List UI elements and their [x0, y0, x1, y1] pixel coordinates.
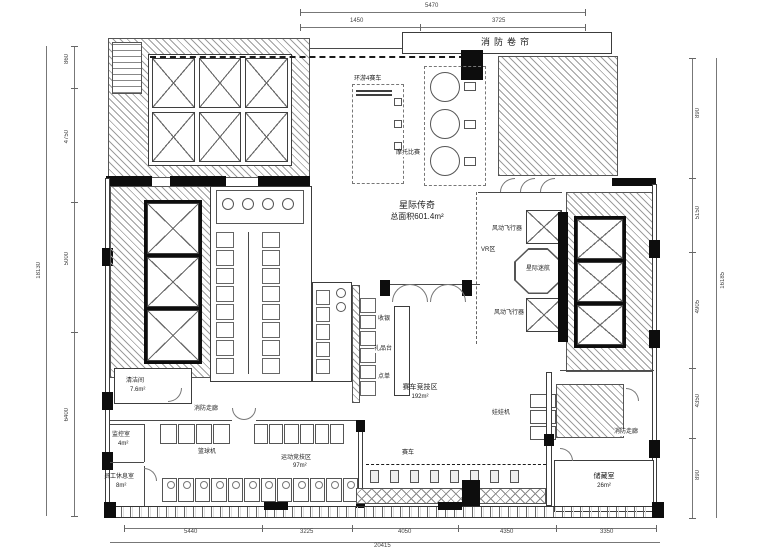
tick	[71, 46, 78, 47]
tick	[71, 332, 78, 333]
dim-right-2: 5150	[695, 206, 701, 219]
wall-pilaster	[102, 392, 113, 410]
tick	[689, 178, 696, 179]
floor-plan: 5470 1450 3725 860 4750 5000 6400 18130 …	[0, 0, 780, 551]
dim-line-top-total	[300, 12, 585, 13]
basketball-machine-icon	[213, 424, 230, 444]
toilet-stall-icon	[216, 286, 234, 302]
claw-machine-icon	[530, 410, 556, 424]
toilet-stall-icon	[262, 358, 280, 374]
tick	[262, 525, 263, 532]
race-zone-dashed-line	[366, 464, 546, 465]
plan-area: 总面积601.4m²	[362, 212, 472, 221]
wall-pilaster	[649, 240, 660, 258]
curtain-wall-window	[112, 506, 656, 518]
dim-right-5: 890	[695, 470, 701, 480]
elevator-shaft-icon	[147, 310, 199, 361]
toilet-stall-icon	[216, 268, 234, 284]
arcade-machine-icon	[293, 478, 308, 502]
corridor-wall	[256, 420, 360, 421]
tick	[300, 9, 301, 16]
moto-sim-icon	[430, 72, 460, 102]
basketball-machine-icon	[160, 424, 177, 444]
dim-bottom-1: 5440	[184, 529, 197, 535]
wall-pilaster	[649, 330, 660, 348]
fixture-icon	[316, 359, 330, 374]
toilet-stall-icon	[262, 340, 280, 356]
dim-top-2: 3725	[492, 18, 505, 24]
basketball-row-left	[160, 424, 230, 444]
fixture-icon	[316, 342, 330, 357]
door-swing-icon	[500, 178, 515, 192]
claw-machine-icon	[530, 394, 556, 408]
dim-bottom-2: 3225	[300, 529, 313, 535]
elevator-shaft-icon	[152, 112, 195, 162]
sports-zone-area: 97m²	[293, 463, 307, 470]
door-swing-icon	[540, 178, 555, 192]
door-swing-icon	[232, 408, 244, 420]
dim-line-left-total	[46, 46, 47, 516]
basketball-row-right	[254, 424, 344, 444]
basketball-machine-icon	[196, 424, 213, 444]
arcade-machine-icon	[195, 478, 210, 502]
screen-icon	[464, 157, 476, 166]
counter	[394, 306, 410, 396]
elevator-shaft-icon	[147, 203, 199, 254]
dim-bottom-5: 3350	[600, 529, 613, 535]
moto-race-label: 摩托比赛	[396, 150, 420, 157]
dim-bottom-4: 4350	[500, 529, 513, 535]
plan-title: 星际传奇	[362, 200, 472, 210]
tick	[556, 525, 557, 532]
cashier-label: 收银	[378, 316, 390, 323]
monitor-room-wall	[110, 424, 144, 425]
fixture-column	[316, 290, 330, 374]
wall-pilaster	[102, 452, 113, 470]
toilet-stall-icon	[262, 286, 280, 302]
toilet-stalls-right	[262, 232, 280, 374]
sink-icon	[262, 198, 274, 210]
cleaning-room	[114, 368, 192, 404]
door-swing-icon	[430, 284, 448, 302]
fixture-icon	[316, 290, 330, 305]
stall-aisle-line	[248, 232, 249, 374]
wall-segment	[258, 176, 310, 186]
dim-left-4: 6400	[64, 408, 70, 421]
tick	[585, 9, 586, 16]
wall-column	[462, 480, 480, 506]
door-swing-icon	[144, 468, 157, 481]
race-car-label: 赛车	[402, 450, 414, 457]
dim-left-1: 860	[64, 54, 70, 64]
elevator-bank-right	[574, 216, 626, 348]
arcade-machine-icon	[310, 478, 325, 502]
basketball-machine-icon	[315, 424, 329, 444]
dim-bottom-total: 20415	[374, 543, 391, 549]
shelf-cell-icon	[360, 298, 376, 313]
moto-sim-icon	[430, 109, 460, 139]
toilet-stall-icon	[216, 322, 234, 338]
sink-icon	[242, 198, 254, 210]
tick	[585, 24, 586, 31]
wall-mullion	[264, 502, 288, 510]
seat-icon	[394, 120, 402, 128]
basketball-machine-icon	[269, 424, 283, 444]
tick	[300, 24, 301, 31]
monitor-room-wall	[144, 424, 145, 462]
basketball-machine-icon	[330, 424, 344, 444]
arcade-machine-icon	[261, 478, 276, 502]
cleaning-room-label: 清洁间	[126, 378, 144, 385]
vr-zone-label: VR区	[481, 247, 495, 254]
wall-hatch-strip	[352, 285, 360, 403]
tick	[71, 202, 78, 203]
toilet-stall-icon	[262, 304, 280, 320]
shelf-cell-icon	[360, 381, 376, 396]
basin-icon	[336, 302, 346, 312]
arcade-machine-icon	[326, 478, 341, 502]
shelf-cell-icon	[360, 365, 376, 380]
claw-machine-label: 娃娃机	[492, 410, 510, 417]
staff-room-label: 员工休息室	[104, 474, 134, 481]
vr-top-wall	[478, 192, 562, 193]
gift-counter-label: 礼品台	[374, 346, 392, 353]
monitor-room-label: 监控室	[112, 432, 130, 439]
race-seat-icon	[390, 470, 399, 483]
moto-sim-icon	[430, 146, 460, 176]
wall-corner	[652, 502, 664, 518]
arcade-machine-icon	[211, 478, 226, 502]
tick	[656, 525, 657, 532]
door-swing-icon	[520, 178, 535, 192]
dim-right-4: 4350	[695, 394, 701, 407]
elevator-shaft-icon	[577, 262, 623, 302]
toilet-stall-icon	[216, 358, 234, 374]
arcade-machine-icon	[178, 478, 193, 502]
toilet-stall-icon	[216, 340, 234, 356]
arcade-machine-icon	[244, 478, 259, 502]
race-seat-icon	[430, 470, 439, 483]
seat-icon	[394, 142, 402, 150]
tick	[458, 525, 459, 532]
sink-icon	[282, 198, 294, 210]
wind-flyer-bottom-label: 风动飞行器	[494, 310, 524, 317]
door-swing-icon	[410, 284, 428, 302]
race-seat-icon	[450, 470, 459, 483]
racing4-machines	[356, 90, 392, 164]
tick	[689, 368, 696, 369]
toilet-stall-icon	[262, 232, 280, 248]
door-swing-icon	[244, 408, 256, 420]
race-seat-icon	[370, 470, 379, 483]
wall-pilaster	[649, 440, 660, 458]
basketball-machine-icon	[254, 424, 268, 444]
screen-icon	[464, 82, 476, 91]
wind-flyer-top-label: 风动飞行器	[492, 226, 522, 233]
elevator-shaft-icon	[147, 257, 199, 308]
toilet-stall-icon	[262, 268, 280, 284]
basin-icon	[336, 288, 346, 298]
dim-left-total: 18130	[36, 262, 42, 279]
tick	[71, 516, 78, 517]
shelf-cell-icon	[360, 315, 376, 330]
wall-corner	[104, 502, 116, 518]
wind-flyer-icon	[526, 210, 562, 244]
dim-line-top-seg	[300, 27, 585, 28]
tick	[689, 518, 696, 519]
vr-zone-dashed-line	[476, 192, 477, 344]
wall-segment	[558, 212, 568, 342]
order-point-label: 点单	[378, 374, 390, 381]
elevator-shaft-icon	[245, 58, 288, 108]
wall-column	[380, 280, 390, 296]
toilet-stall-icon	[262, 322, 280, 338]
basketball-label: 篮球机	[198, 449, 216, 456]
toilet-stalls-left	[216, 232, 234, 374]
wall-pilaster	[544, 434, 554, 446]
corridor-wall	[560, 370, 654, 371]
fire-shutter-label: 消防卷帘	[402, 37, 612, 47]
fixture-icon	[316, 307, 330, 322]
wall-segment	[170, 176, 226, 186]
fire-shutter-dashed-line	[150, 56, 465, 58]
dim-top-1: 1450	[350, 18, 363, 24]
elevator-shaft-icon	[245, 112, 288, 162]
fire-corridor-left-label: 消防走廊	[194, 406, 218, 413]
dim-line-bottom-seg	[124, 528, 656, 529]
staff-room-area: 8m²	[116, 483, 126, 490]
dim-bottom-3: 4050	[398, 529, 411, 535]
fire-corridor-right-label: 消防走廊	[614, 429, 638, 436]
arcade-machine-icon	[277, 478, 292, 502]
door-swing-icon	[392, 284, 410, 302]
sports-machine-row	[162, 478, 358, 502]
elevator-bank-topleft	[152, 58, 288, 162]
wall-segment	[612, 178, 656, 186]
shelf-cell-icon	[360, 331, 376, 346]
storage-room-label: 储藏室	[564, 473, 644, 481]
toilet-stall-icon	[262, 250, 280, 266]
racing-sim-icon	[356, 90, 392, 92]
tick	[689, 58, 696, 59]
monitor-room-area: 4m²	[118, 441, 128, 448]
dim-line-right-total	[716, 58, 717, 518]
stair-icon	[112, 42, 142, 94]
dim-top-total: 5470	[425, 3, 438, 9]
wind-flyer-icon	[526, 298, 562, 332]
monitor-room-wall	[110, 462, 144, 463]
storage-room-area: 26m²	[564, 483, 644, 490]
tick	[420, 24, 421, 31]
racing4-label: 环游4赛车	[354, 76, 381, 83]
arcade-machine-icon	[162, 478, 177, 502]
racing-sim-icon	[356, 94, 392, 96]
elevator-bank-left	[144, 200, 202, 364]
dim-line-right-seg	[692, 58, 693, 518]
race-seat-icon	[510, 470, 519, 483]
sink-icon	[222, 198, 234, 210]
wall-pilaster	[356, 420, 365, 432]
fixture-icon	[316, 324, 330, 339]
toilet-stall-icon	[216, 232, 234, 248]
dim-line-left-seg	[74, 46, 75, 516]
dim-left-3: 5000	[64, 252, 70, 265]
race-seat-icon	[490, 470, 499, 483]
tick	[352, 525, 353, 532]
wall-mullion	[438, 502, 462, 510]
tick	[71, 88, 78, 89]
screen-icon	[464, 120, 476, 129]
cleaning-room-area: 7.6m²	[130, 387, 145, 394]
tick	[689, 438, 696, 439]
basketball-machine-icon	[178, 424, 195, 444]
dim-right-3: 4905	[695, 300, 701, 313]
racing-zone-area: 192m²	[390, 394, 450, 401]
toilet-stall-icon	[216, 250, 234, 266]
door-swing-icon	[560, 448, 573, 461]
elevator-shaft-icon	[152, 58, 195, 108]
basketball-machine-icon	[300, 424, 314, 444]
dim-left-2: 4750	[64, 130, 70, 143]
tick	[124, 525, 125, 532]
arcade-machine-icon	[228, 478, 243, 502]
tick	[689, 252, 696, 253]
race-seat-row	[370, 470, 519, 483]
moto-machines	[430, 72, 460, 176]
dim-right-total: 16185	[720, 272, 726, 289]
elevator-shaft-icon	[577, 305, 623, 345]
race-seat-icon	[410, 470, 419, 483]
basketball-machine-icon	[284, 424, 298, 444]
dim-right-1: 890	[695, 108, 701, 118]
wall-segment	[106, 176, 152, 186]
toilet-stall-icon	[216, 304, 234, 320]
racing-zone-label: 赛车竞技区	[390, 384, 450, 392]
elevator-shaft-icon	[199, 112, 242, 162]
hatched-core-topright	[498, 56, 618, 176]
elevator-shaft-icon	[199, 58, 242, 108]
sports-zone-label: 运动竞技区	[281, 455, 311, 462]
door-swing-icon	[626, 388, 639, 401]
elevator-shaft-icon	[577, 219, 623, 259]
corridor-wall	[110, 420, 232, 421]
roof-edge-line	[310, 48, 402, 49]
seat-icon	[394, 98, 402, 106]
